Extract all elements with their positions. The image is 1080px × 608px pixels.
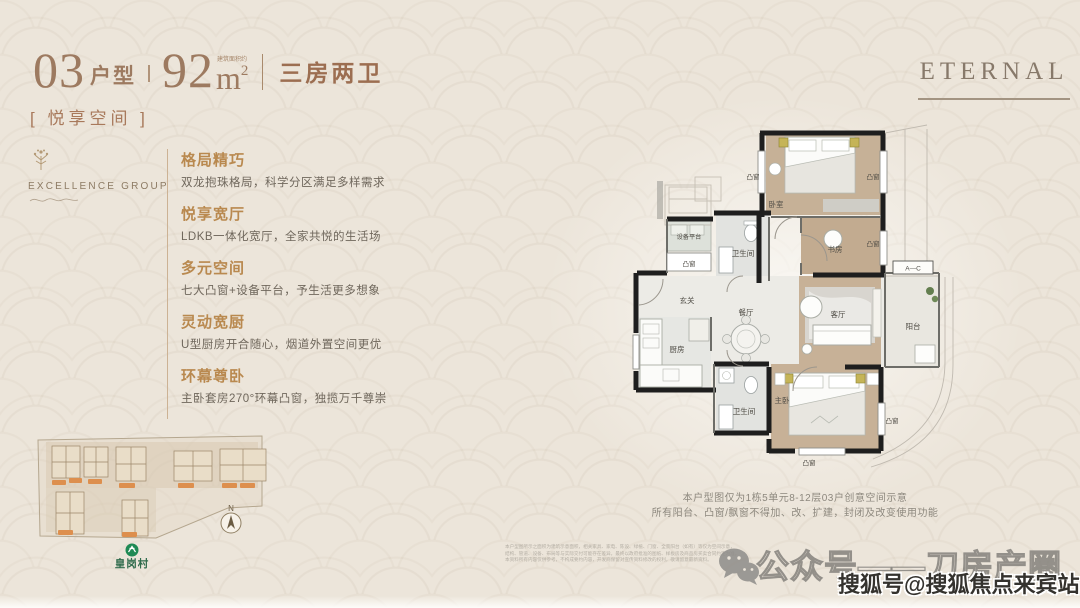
room-label-dining: 餐厅	[739, 308, 754, 317]
bottom-fade	[0, 596, 1080, 608]
header-tick	[148, 65, 150, 82]
feature-item: 灵动宽厨 U型厨房开合随心，烟道外置空间更优	[181, 311, 481, 352]
room-label-living: 客厅	[831, 309, 846, 319]
area-unit: m	[216, 60, 241, 96]
section-marker: A—C	[893, 261, 933, 274]
header-divider	[262, 54, 263, 90]
feature-title: 悦享宽厅	[181, 203, 481, 224]
logo-script-flourish	[28, 195, 88, 205]
unit-number: 03	[33, 46, 85, 94]
site-map: N 皇岗村	[28, 430, 280, 576]
room-label-study: 书房	[828, 244, 843, 254]
floor-plan: A—C 卧室 凸窗 凸窗 书房 凸窗 卫生间 设备平台 凸窗 玄关 餐厅 客厅 …	[583, 121, 985, 473]
bay-label: 凸窗	[683, 259, 696, 268]
feature-item: 多元空间 七大凸窗+设备平台，予生活更多想象	[181, 257, 481, 298]
room-label-kitchen: 厨房	[670, 344, 685, 354]
room-label-entry: 玄关	[680, 295, 695, 305]
feature-item: 悦享宽厅 LDKB一体化宽厅，全家共悦的生活场	[181, 203, 481, 244]
bay-label: 凸窗	[803, 458, 816, 467]
room-label-master: 主卧	[775, 395, 790, 405]
area-note: 建筑面积约	[217, 54, 247, 63]
room-label-equip: 设备平台	[677, 233, 702, 241]
room-label-balcony: 阳台	[906, 321, 921, 331]
feature-desc: U型厨房开合随心，烟道外置空间更优	[181, 336, 481, 352]
feature-desc: 双龙抱珠格局，科学分区满足多样需求	[181, 174, 481, 190]
tree-icon	[28, 146, 54, 172]
feature-title: 环幕尊卧	[181, 365, 481, 386]
area-unit-wrap: 建筑面积约 m2	[216, 63, 248, 94]
svg-text:N: N	[228, 504, 234, 513]
feature-item: 格局精巧 双龙抱珠格局，科学分区满足多样需求	[181, 149, 481, 190]
feature-desc: 主卧套房270°环幕凸窗，独揽万千尊崇	[181, 390, 481, 406]
feature-title: 多元空间	[181, 257, 481, 278]
plan-caption: 本户型图仅为1栋5单元8-12层03户创意空间示意 所有阳台、凸窗/飘窗不得加、…	[600, 491, 990, 521]
station-label: 皇岗村	[115, 557, 150, 570]
bay-label: 凸窗	[867, 239, 880, 248]
brand-logo: ETERNAL	[918, 58, 1070, 100]
developer-name: EXCELLENCE GROUP	[28, 181, 158, 192]
bay-label: 凸窗	[867, 172, 880, 181]
feature-item: 环幕尊卧 主卧套房270°环幕凸窗，独揽万千尊崇	[181, 365, 481, 406]
feature-desc: 七大凸窗+设备平台，予生活更多想象	[181, 282, 481, 298]
plan-caption-line1: 本户型图仅为1栋5单元8-12层03户创意空间示意	[600, 491, 990, 506]
room-label-bedroom: 卧室	[769, 199, 784, 209]
feature-desc: LDKB一体化宽厅，全家共悦的生活场	[181, 228, 481, 244]
plan-caption-line2: 所有阳台、凸窗/飘窗不得加、改、扩建，封闭及改变使用功能	[600, 506, 990, 521]
sohu-watermark: 搜狐号@搜狐焦点来宾站	[838, 567, 1079, 599]
area-superscript: 2	[241, 63, 249, 79]
area-value: 92	[162, 46, 214, 94]
header: 03 户型 92 建筑面积约 m2 三房两卫	[33, 46, 383, 94]
rooms-label: 三房两卫	[279, 54, 383, 88]
room-label-bath1: 卫生间	[732, 248, 755, 258]
feature-list: 格局精巧 双龙抱珠格局，科学分区满足多样需求 悦享宽厅 LDKB一体化宽厅，全家…	[167, 149, 481, 419]
room-label-bath2: 卫生间	[733, 406, 756, 416]
metro-station-icon	[126, 544, 139, 557]
developer-logo: EXCELLENCE GROUP	[28, 146, 158, 210]
feature-title: 灵动宽厨	[181, 311, 481, 332]
svg-text:A—C: A—C	[905, 266, 921, 273]
unit-label: 户型	[90, 60, 136, 90]
feature-title: 格局精巧	[181, 149, 481, 170]
bay-label: 凸窗	[886, 416, 899, 425]
space-tag: [ 悦享空间 ]	[30, 104, 149, 129]
bay-label: 凸窗	[747, 172, 760, 181]
